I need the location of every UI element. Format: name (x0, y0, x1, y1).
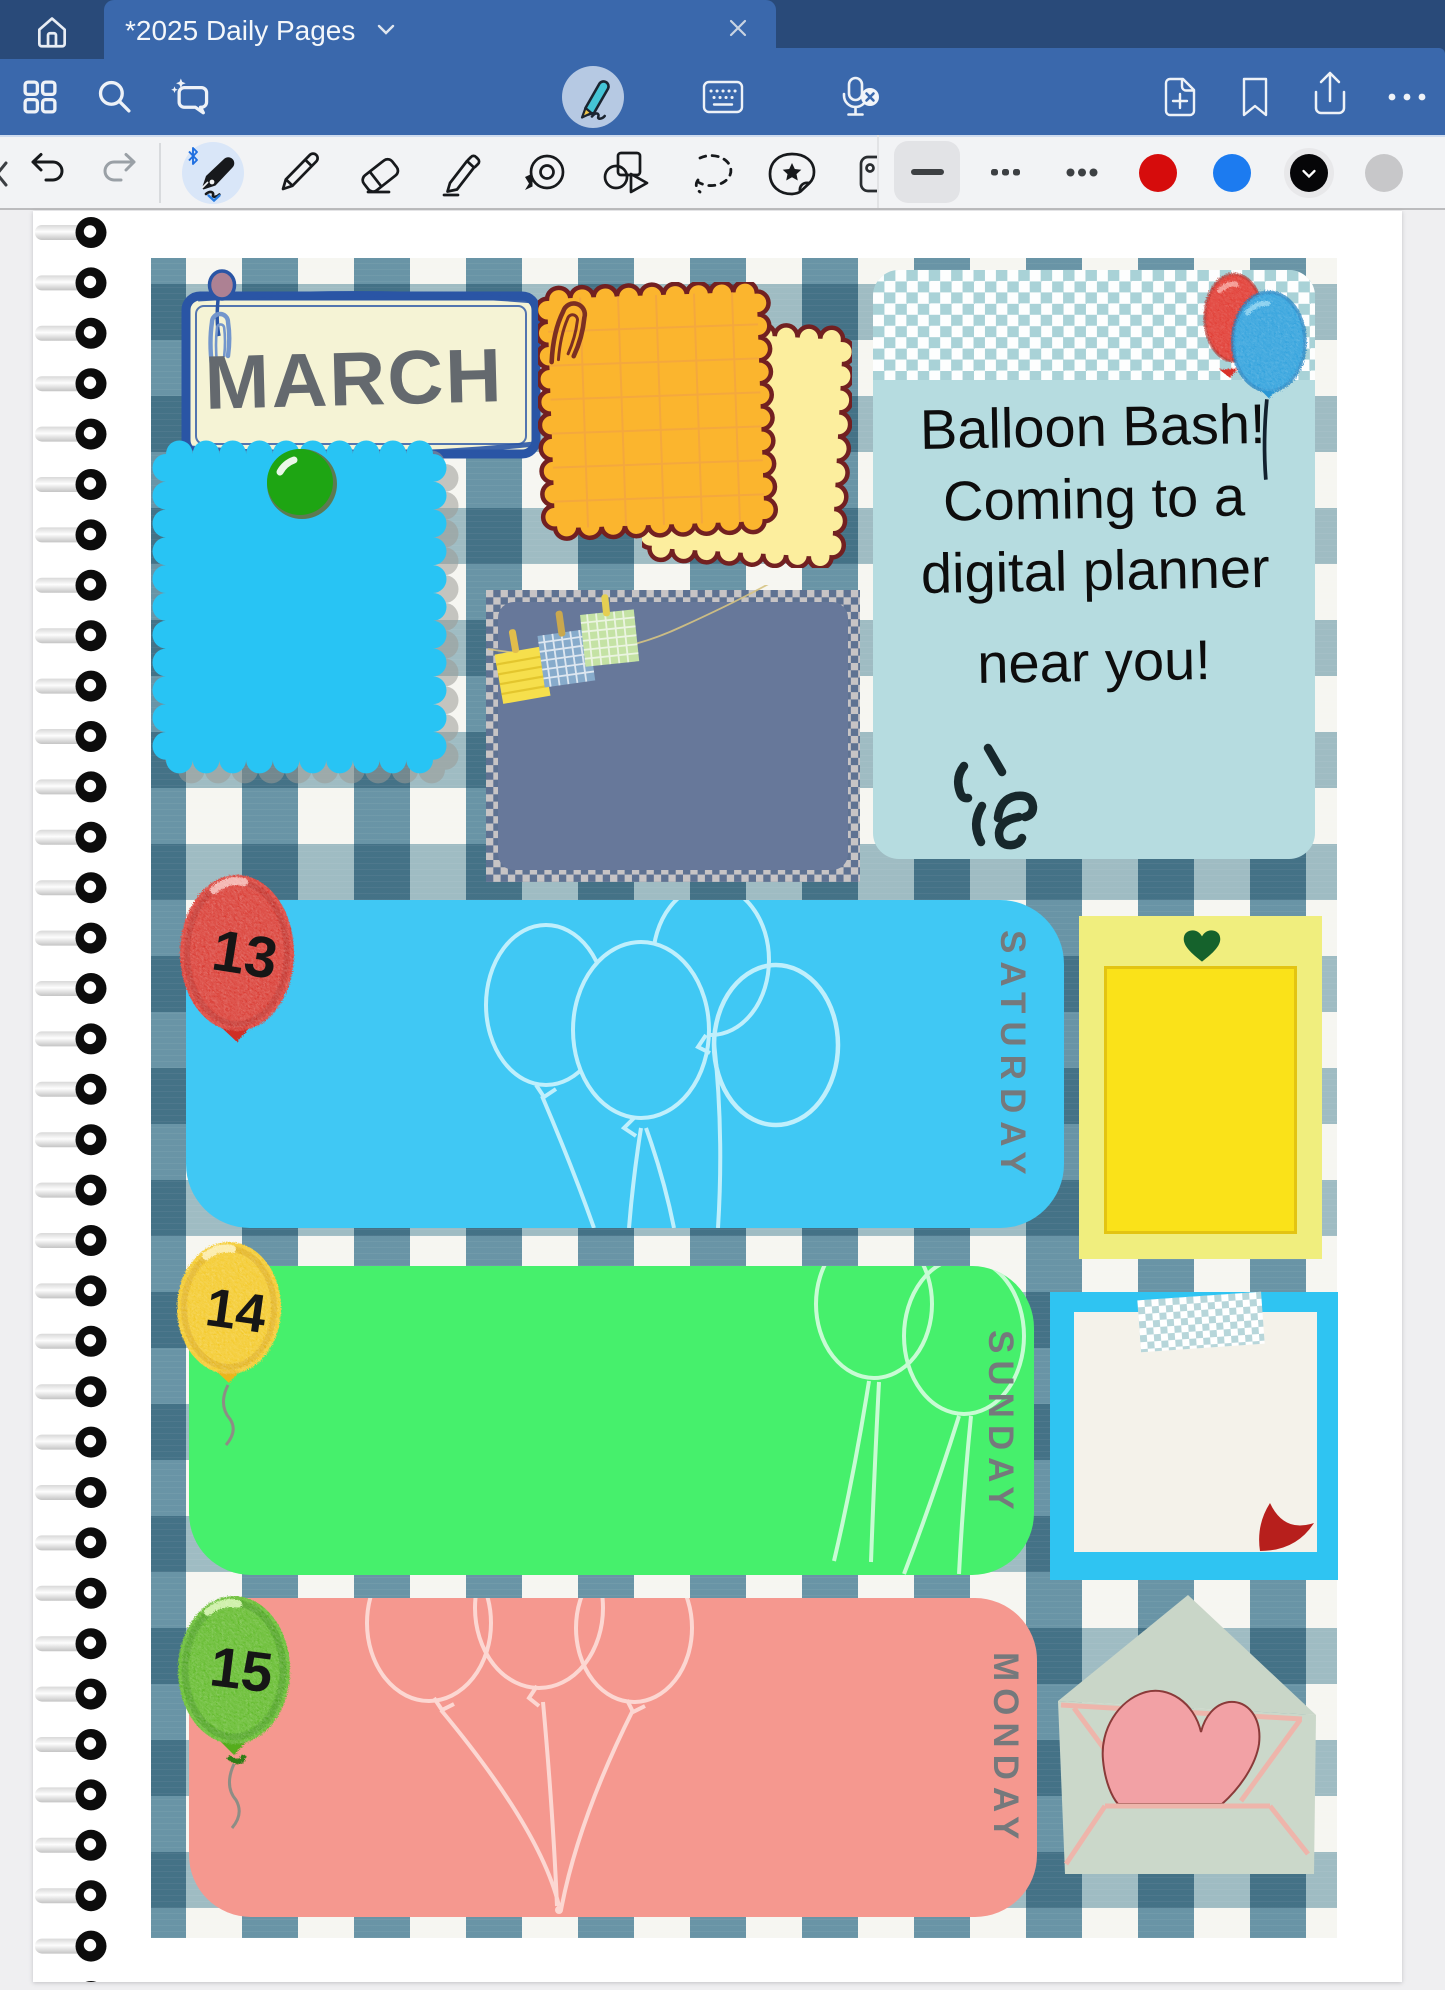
svg-text:13: 13 (208, 918, 282, 992)
svg-text:15: 15 (207, 1634, 277, 1704)
svg-text:14: 14 (202, 1277, 270, 1345)
